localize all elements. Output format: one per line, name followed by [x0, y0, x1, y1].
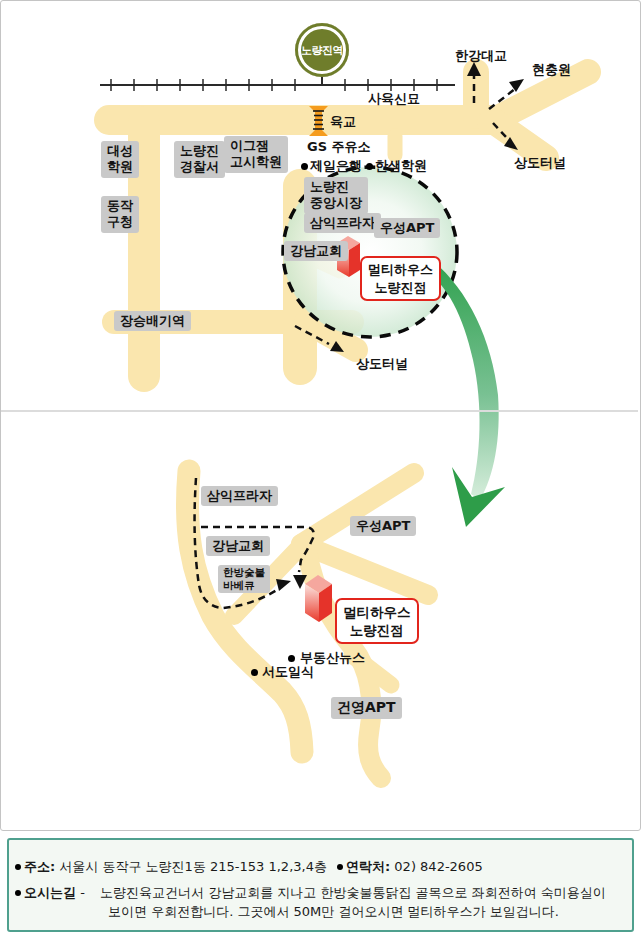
label-samik-plaza-top: 삼익프라자: [304, 213, 381, 233]
label-dongjak-office: 동작 구청: [101, 196, 139, 233]
label-hyeonchungwon: 현충원: [532, 62, 571, 78]
seodo-dot-icon: [251, 669, 258, 676]
label-jeil-bank: 제일은행: [310, 158, 362, 174]
budongsan-dot-icon: [288, 655, 295, 662]
footer-directions-dot-icon: [15, 890, 21, 896]
label-gunyoung-apt: 건영APT: [331, 697, 402, 719]
footer-directions-head: 오시는길 -: [24, 884, 85, 902]
footer-directions-label: 오시는길: [24, 885, 76, 900]
footer-contact-value: 02) 842-2605: [394, 859, 482, 874]
jeil-bank-dot-icon: [301, 163, 308, 170]
hansaem-dot-icon: [366, 163, 373, 170]
noryangjin-station-badge: 노량진역: [295, 23, 349, 77]
label-sayuksinmyo: 사육신묘: [368, 91, 420, 107]
footer-directions-dash: -: [80, 885, 85, 900]
label-gs-gas-station: GS 주유소: [307, 139, 371, 155]
footer-contact: 연락처: 02) 842-2605: [346, 858, 483, 876]
map-page: 노량진역 한강대교 현충원 상도터널 사육신묘 육교 GS 주유소 제일은행 한…: [0, 0, 641, 935]
map-section-divider: [1, 410, 638, 412]
label-jangseungbaegi-station: 장승배기역: [114, 311, 191, 331]
label-wooseong-apt-bottom: 우성APT: [350, 516, 416, 536]
label-wooseong-apt-top: 우성APT: [374, 218, 440, 238]
station-badge-label: 노량진역: [301, 43, 343, 58]
label-exam-academy: 이그잼 고시학원: [224, 136, 288, 173]
label-seodo-ilsik: 서도일식: [262, 664, 314, 680]
footer-contact-dot-icon: [337, 864, 343, 870]
footer-address-label: 주소:: [24, 859, 55, 874]
road-to-sangdo-ne: [492, 120, 546, 158]
label-bbq-restaurant: 한방숯불 바베큐: [218, 565, 270, 593]
map-graphics: [0, 0, 641, 830]
label-sangdo-tunnel-s: 상도터널: [356, 356, 408, 372]
label-footbridge: 육교: [330, 114, 356, 130]
footer-address: 주소: 서울시 동작구 노량진1동 215-153 1,2,3,4층: [24, 858, 327, 876]
footer-address-value: 서울시 동작구 노량진1동 215-153 1,2,3,4층: [59, 859, 327, 874]
label-samik-plaza-bottom: 삼익프라자: [201, 486, 278, 506]
footer-address-dot-icon: [15, 864, 21, 870]
label-hansaem-academy: 한샘학원: [375, 158, 427, 174]
footer-directions-line1: 노량진육교건너서 강남교회를 지나고 한방숯불통닭집 골목으로 좌회전하여 숙미…: [100, 884, 606, 902]
label-police-station: 노량진 경찰서: [174, 141, 225, 178]
label-sangdo-tunnel-ne: 상도터널: [514, 155, 566, 171]
label-central-market-top: 노량진 중앙시장: [304, 177, 368, 214]
footer-directions-line2: 보이면 우회전합니다. 그곳에서 50M만 걸어오시면 멀티하우스가 보일겁니다…: [108, 903, 559, 921]
footer-contact-label: 연락처:: [346, 859, 390, 874]
store-label-bottom: 멀티하우스 노량진점: [335, 598, 419, 644]
label-hangang-bridge: 한강대교: [455, 48, 507, 64]
store-label-top: 멀티하우스 노량진점: [360, 256, 441, 301]
label-gangnam-church-top: 강남교회: [284, 241, 348, 261]
store-building-bottom: [305, 575, 332, 622]
label-daesung-academy: 대성 학원: [101, 141, 139, 178]
railway: [100, 76, 455, 91]
label-gangnam-church-bottom: 강남교회: [206, 536, 270, 556]
